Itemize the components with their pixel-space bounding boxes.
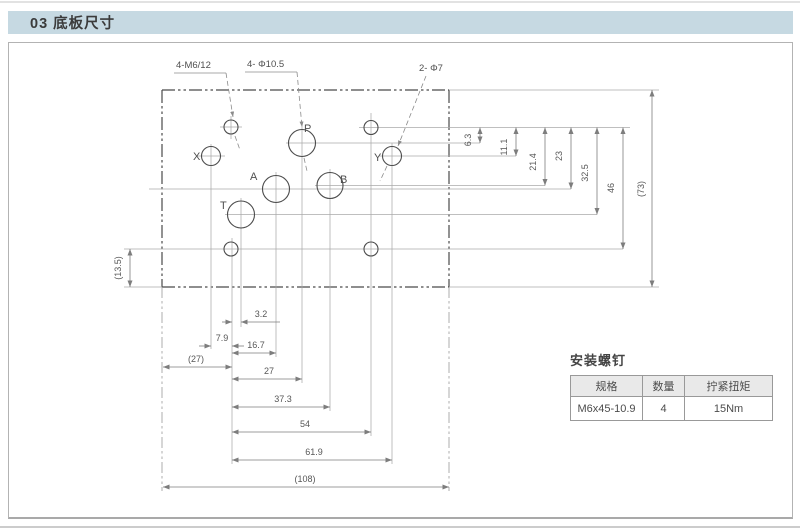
table-cell-qty: 4 <box>643 397 685 421</box>
port-label-b: B <box>340 174 347 186</box>
dim-108: (108) <box>294 474 315 484</box>
port-label-p: P <box>304 123 311 135</box>
dim-13-5: (13.5) <box>113 256 123 280</box>
dim-32-5: 32.5 <box>580 164 590 182</box>
table-cell-torque: 15Nm <box>685 397 773 421</box>
dim-16-7: 16.7 <box>247 340 265 350</box>
table-header-torque: 拧紧扭矩 <box>685 376 773 397</box>
port-labels: X P Y A B T <box>193 123 382 212</box>
table-row: M6x45-10.9 4 15Nm <box>571 397 773 421</box>
callout-mounting-holes: 4-M6/12 <box>176 60 211 71</box>
dim-46: 46 <box>606 183 616 193</box>
dim-21-4: 21.4 <box>528 153 538 171</box>
callout-main-ports-leader <box>297 72 302 127</box>
dim-7-9: 7.9 <box>216 333 229 343</box>
dim-37-3: 37.3 <box>274 394 292 404</box>
page-bottom-rule <box>0 526 800 528</box>
dim-6-3: 6.3 <box>463 134 473 147</box>
table-cell-spec: M6x45-10.9 <box>571 397 643 421</box>
table-header-qty: 数量 <box>643 376 685 397</box>
holes <box>202 120 402 256</box>
dimension-drawing: X P Y A B T 4-M6/12 4- Φ10.5 2- Φ7 6.3 1… <box>0 0 800 532</box>
dim-11-1: 11.1 <box>499 139 509 156</box>
dim-23: 23 <box>554 151 564 161</box>
vertical-dimensions: 6.3 11.1 21.4 23 32.5 46 (73) <box>463 90 652 287</box>
port-label-y: Y <box>374 152 382 164</box>
table-header-spec: 规格 <box>571 376 643 397</box>
dim-73: (73) <box>636 181 646 197</box>
port-label-a: A <box>250 171 258 183</box>
dim-27-ref: (27) <box>188 354 204 364</box>
mounting-screw-block: 安装螺钉 规格 数量 拧紧扭矩 M6x45-10.9 4 15Nm <box>570 350 770 421</box>
callout-pilot-ports: 2- Φ7 <box>419 63 443 74</box>
dim-3-2: 3.2 <box>255 309 268 319</box>
hole-callouts: 4-M6/12 4- Φ10.5 2- Φ7 <box>174 59 443 181</box>
port-label-t: T <box>220 200 227 212</box>
dim-27: 27 <box>264 366 274 376</box>
mounting-screw-title: 安装螺钉 <box>570 350 770 369</box>
table-header-row: 规格 数量 拧紧扭矩 <box>571 376 773 397</box>
plate-outline <box>162 90 449 491</box>
callout-mounting-leader <box>226 73 233 117</box>
left-dimension: (13.5) <box>113 249 130 287</box>
callout-pilot-ports-leader <box>398 76 426 146</box>
dim-54: 54 <box>300 419 310 429</box>
port-label-x: X <box>193 151 201 163</box>
callout-main-ports: 4- Φ10.5 <box>247 59 284 70</box>
dim-61-9: 61.9 <box>305 447 323 457</box>
mounting-screw-table: 规格 数量 拧紧扭矩 M6x45-10.9 4 15Nm <box>570 375 773 421</box>
horizontal-dimensions: 3.2 7.9 16.7 (27) 27 37.3 54 61.9 (108) <box>163 309 449 487</box>
